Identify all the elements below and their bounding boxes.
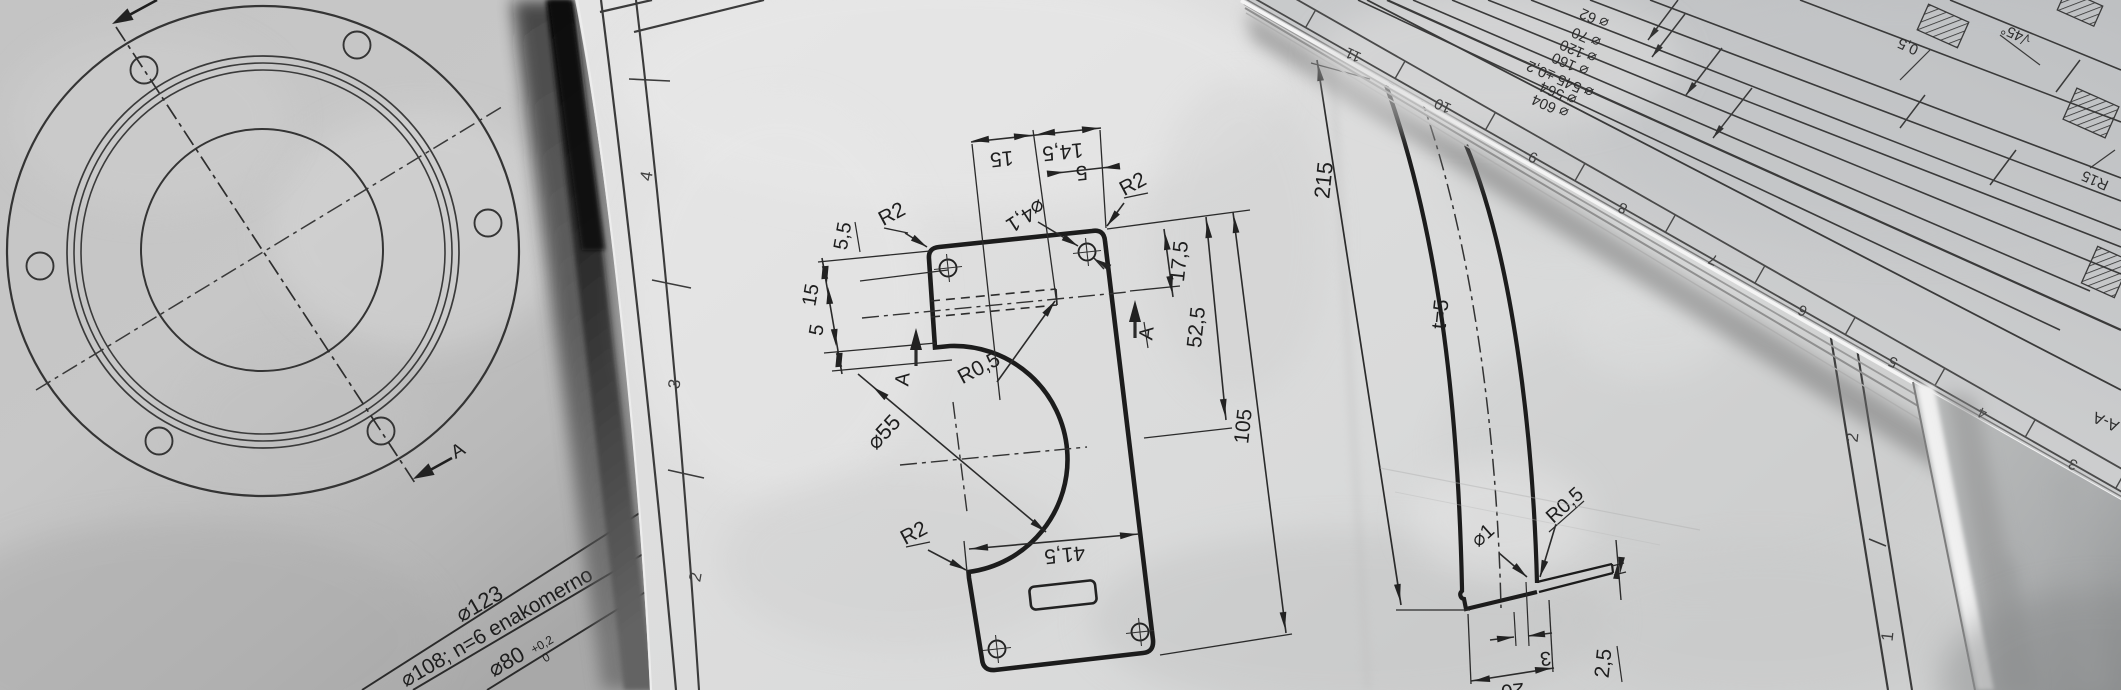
- svg-text:41,5: 41,5: [1043, 541, 1086, 568]
- svg-text:52,5: 52,5: [1183, 306, 1210, 349]
- svg-text:5: 5: [1075, 160, 1089, 184]
- svg-text:15: 15: [798, 282, 824, 308]
- svg-text:2: 2: [1843, 432, 1863, 443]
- svg-text:14,5: 14,5: [1041, 138, 1084, 165]
- svg-text:t=5: t=5: [1428, 298, 1454, 330]
- svg-text:3: 3: [1539, 646, 1552, 669]
- svg-text:2,5: 2,5: [1591, 648, 1617, 679]
- svg-text:105: 105: [1230, 408, 1257, 445]
- svg-text:1: 1: [1878, 631, 1898, 642]
- svg-text:15: 15: [989, 146, 1015, 171]
- svg-text:17,5: 17,5: [1166, 240, 1193, 283]
- svg-text:215: 215: [1309, 161, 1338, 200]
